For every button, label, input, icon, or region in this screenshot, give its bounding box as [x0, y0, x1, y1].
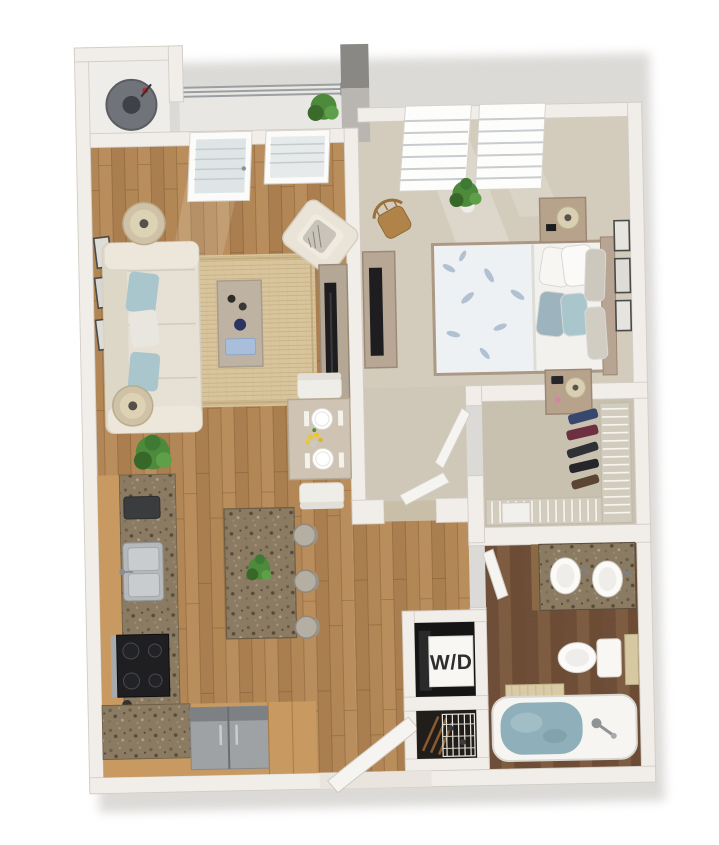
sofa-arm-top	[104, 241, 199, 269]
plan: W/D	[74, 36, 656, 798]
wall-hall-south-left	[352, 500, 384, 525]
living-window	[263, 130, 331, 184]
tub-water	[500, 702, 583, 756]
napkin	[339, 452, 344, 467]
wd-label: W/D	[430, 651, 473, 675]
refrigerator	[190, 706, 269, 770]
white-pillow	[128, 309, 160, 348]
floor-lamp-bottom	[112, 385, 153, 426]
toilet-tank	[597, 639, 622, 677]
storage-closet	[416, 710, 477, 759]
kitchen-sink	[119, 542, 164, 601]
floor-plan-image: W/D	[0, 0, 719, 845]
bar-stools	[293, 524, 318, 638]
wall-wd-bottom	[405, 757, 489, 771]
range-cooktop	[111, 634, 170, 697]
wall-bath-left-a	[465, 386, 481, 406]
wall-bath-left-b	[467, 476, 484, 543]
floor-plan-svg: W/D	[0, 0, 719, 845]
bathtub	[492, 694, 637, 761]
bedroom-window-1	[398, 105, 474, 192]
wall-nook-top	[74, 46, 182, 62]
wall-nook-right	[168, 46, 183, 102]
accent-pillow-1	[125, 271, 160, 314]
balcony-column	[340, 44, 370, 143]
wire-shelf-right	[600, 402, 633, 523]
balcony-door	[186, 131, 253, 201]
alarm-clock	[546, 224, 556, 231]
coffee-table	[217, 280, 263, 367]
bedroom-window-2	[474, 103, 548, 189]
floor-lamp-top	[123, 202, 166, 245]
wall-wd-divider	[404, 695, 488, 711]
round-grill	[106, 79, 157, 130]
napkin	[305, 453, 310, 468]
dining-chair-bottom	[299, 482, 344, 509]
decor-book	[225, 338, 255, 355]
kitchen-island	[224, 507, 319, 640]
phone	[551, 376, 563, 384]
closet-drawer-unit	[502, 503, 530, 524]
nightstand-top	[540, 197, 587, 242]
hall-doorway-threshold	[384, 501, 436, 522]
napkin	[338, 410, 343, 425]
bedroom-wall-frames	[614, 220, 631, 330]
media-dresser	[363, 251, 397, 368]
bedroom-tv	[369, 268, 384, 356]
vanity	[531, 542, 636, 610]
patterned-pillow-1	[584, 249, 606, 302]
laundry-closet: W/D	[414, 622, 476, 697]
towel-bar	[625, 634, 639, 684]
napkin	[304, 411, 309, 426]
dining-chair-top	[297, 372, 342, 399]
patterned-pillow-2	[584, 306, 608, 359]
countertop-appliance	[124, 496, 160, 519]
counter-bottom-granite	[102, 704, 191, 760]
nightstand-bottom	[545, 369, 592, 414]
bed	[432, 237, 617, 379]
